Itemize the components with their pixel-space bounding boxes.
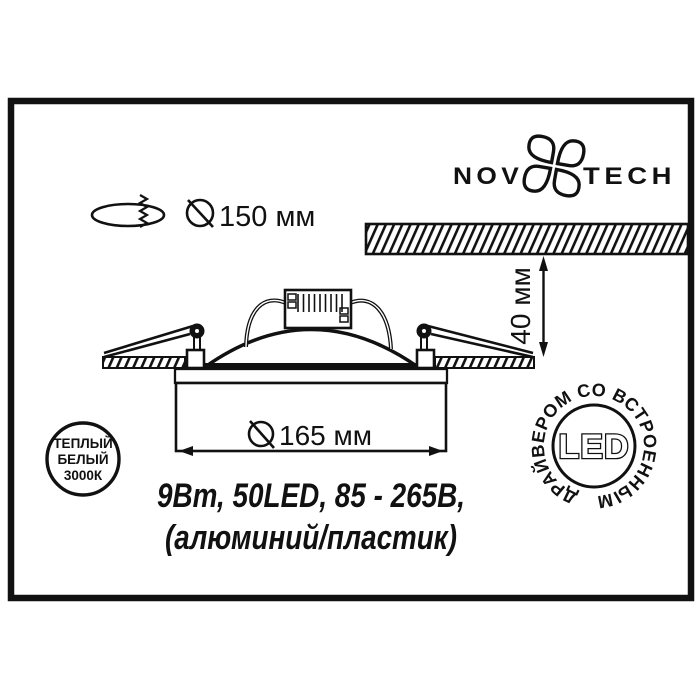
depth-dimension: 40 мм [505,256,548,357]
spec-text: 9Вт, 50LED, 85 - 265В, (алюминий/пластик… [157,477,465,557]
arrow-down-icon [539,342,548,357]
spec-line-2: (алюминий/пластик) [165,519,457,557]
flange-hatch-right [435,357,534,368]
led-driver-badge: ДРАЙВЕРОМ СО ВСТРОЕННЫМ LED [528,380,661,513]
led-driver-box [285,290,351,328]
flange-hatch-left [103,357,185,368]
diameter-icon [187,200,213,227]
logo-text-right: TECH [583,163,676,190]
depth-label: 40 мм [505,267,536,344]
novotech-flower-icon [521,133,586,198]
color-temp-line-3: 3000К [64,468,103,483]
spec-line-1: 9Вт, 50LED, 85 - 265В, [157,477,465,515]
novotech-logo: NOVO TECH [453,133,676,198]
color-temp-line-2: БЕЛЫЙ [57,452,108,467]
trim-ring [175,369,447,383]
diagram-canvas: 150 мм NOVO TECH 40 мм [0,0,700,700]
cutout-dimension: 150 мм [92,195,315,233]
hole-ellipse-icon [92,204,164,226]
drill-icon [140,195,147,227]
led-badge-center-text: LED [559,428,630,466]
ceiling-hatch [366,224,688,254]
product-spec-diagram: 150 мм NOVO TECH 40 мм [0,0,700,700]
arrow-up-icon [539,256,548,271]
cutout-label: 150 мм [219,201,315,233]
width-label: 165 мм [279,420,372,451]
color-temp-badge: ТЕПЛЫЙ БЕЛЫЙ 3000К [47,423,119,495]
color-temp-line-1: ТЕПЛЫЙ [53,436,112,451]
fixture-cross-section: 165 мм [103,290,534,456]
fixture-dome [205,330,418,368]
